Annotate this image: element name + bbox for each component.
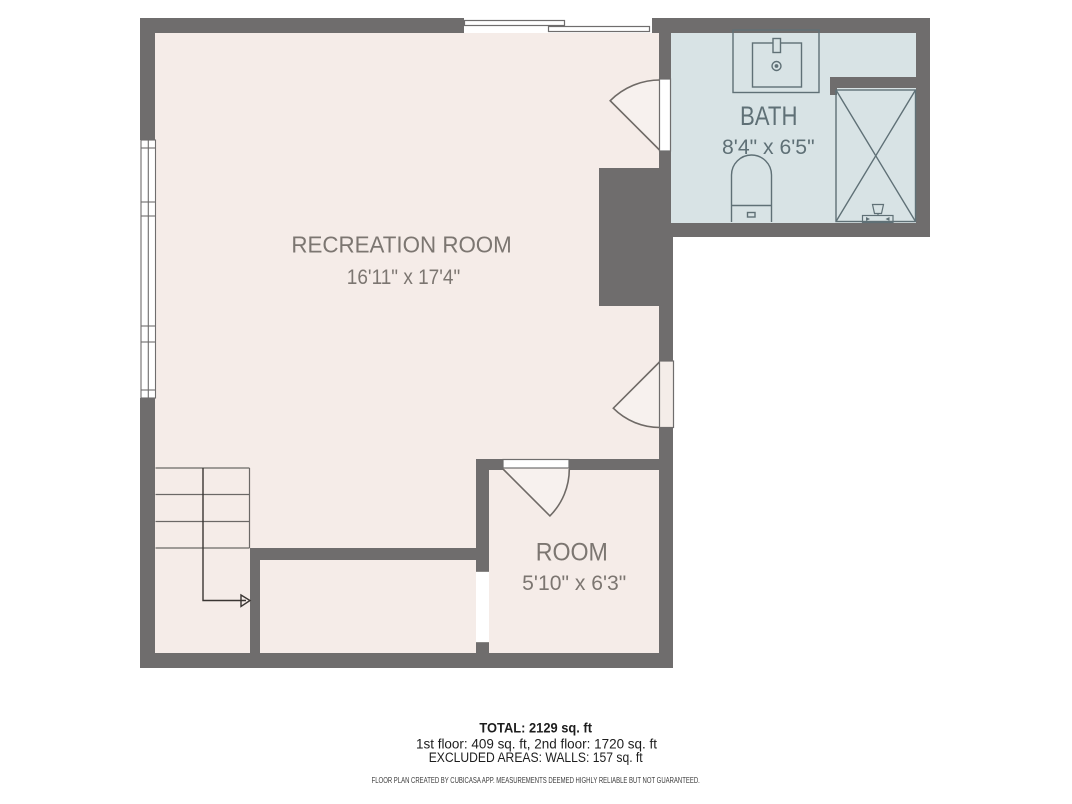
svg-text:RECREATION ROOM: RECREATION ROOM xyxy=(291,232,511,258)
svg-text:FLOOR PLAN CREATED BY CUBICASA: FLOOR PLAN CREATED BY CUBICASA APP. MEAS… xyxy=(372,775,700,785)
svg-text:TOTAL: 2129 sq. ft: TOTAL: 2129 sq. ft xyxy=(479,721,592,737)
svg-text:5'10" x 6'3": 5'10" x 6'3" xyxy=(522,572,626,595)
svg-text:8'4" x 6'5": 8'4" x 6'5" xyxy=(722,136,815,159)
svg-text:ROOM: ROOM xyxy=(536,539,608,567)
svg-text:16'11" x 17'4": 16'11" x 17'4" xyxy=(347,264,460,289)
svg-text:BATH: BATH xyxy=(740,101,798,131)
svg-text:EXCLUDED AREAS: WALLS: 157 sq.: EXCLUDED AREAS: WALLS: 157 sq. ft xyxy=(429,750,643,766)
